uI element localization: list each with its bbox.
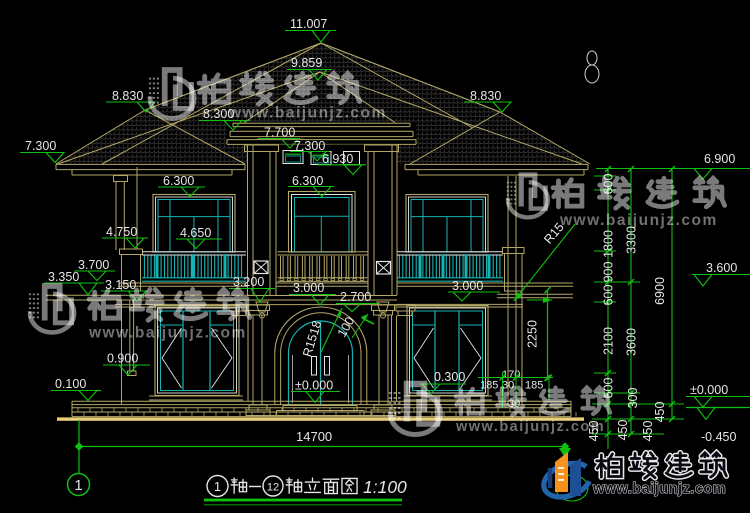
- svg-text:3.700: 3.700: [78, 258, 109, 272]
- svg-text:4.650: 4.650: [180, 226, 211, 240]
- svg-text:6.900: 6.900: [704, 152, 735, 166]
- svg-text:185: 185: [480, 380, 498, 392]
- svg-text:0.300: 0.300: [434, 370, 465, 384]
- svg-text:600: 600: [602, 285, 616, 306]
- svg-text:1:100: 1:100: [363, 477, 407, 497]
- svg-text:www.baijunjz.com: www.baijunjz.com: [559, 212, 718, 229]
- svg-text:300: 300: [626, 388, 640, 409]
- svg-text:450: 450: [653, 402, 667, 423]
- svg-text:14700: 14700: [296, 429, 332, 444]
- svg-text:4.750: 4.750: [106, 225, 137, 239]
- svg-text:9.859: 9.859: [291, 56, 322, 70]
- svg-text:7.300: 7.300: [294, 139, 325, 153]
- svg-text:±0.000: ±0.000: [690, 383, 728, 397]
- svg-text:3.600: 3.600: [706, 261, 737, 275]
- svg-text:450: 450: [641, 421, 655, 442]
- svg-text:-0.450: -0.450: [701, 430, 736, 444]
- svg-text:www.baijunjz.com: www.baijunjz.com: [88, 325, 247, 342]
- svg-text:185: 185: [525, 380, 543, 392]
- svg-text:6.300: 6.300: [163, 174, 194, 188]
- svg-text:3600: 3600: [625, 328, 639, 356]
- svg-text:11.007: 11.007: [290, 17, 327, 31]
- svg-text:8.830: 8.830: [470, 89, 501, 103]
- svg-text:www.baijunjz.com: www.baijunjz.com: [455, 419, 605, 435]
- svg-text:3.000: 3.000: [293, 281, 324, 295]
- svg-text:www.baijunjz.com: www.baijunjz.com: [592, 481, 726, 497]
- svg-text:3.350: 3.350: [48, 270, 79, 284]
- svg-text:0.900: 0.900: [107, 352, 138, 366]
- svg-text:12: 12: [267, 482, 279, 494]
- svg-text:7.300: 7.300: [25, 139, 56, 153]
- svg-text:±0.000: ±0.000: [295, 379, 333, 393]
- svg-text:1: 1: [214, 479, 221, 494]
- svg-text:450: 450: [616, 420, 630, 441]
- svg-text:6.930: 6.930: [322, 152, 353, 166]
- svg-text:6.300: 6.300: [292, 174, 323, 188]
- svg-text:3.000: 3.000: [452, 279, 483, 293]
- svg-text:900: 900: [602, 262, 616, 283]
- svg-text:0.100: 0.100: [55, 377, 86, 391]
- svg-text:www.baijunjz.com: www.baijunjz.com: [228, 105, 387, 122]
- svg-text:8.830: 8.830: [112, 89, 143, 103]
- svg-text:2.700: 2.700: [340, 290, 371, 304]
- svg-text:1: 1: [74, 477, 82, 494]
- svg-text:3300: 3300: [625, 226, 639, 254]
- svg-text:2250: 2250: [526, 320, 540, 348]
- svg-text:1800: 1800: [602, 230, 616, 258]
- svg-text:7.700: 7.700: [264, 126, 295, 140]
- svg-text:2100: 2100: [602, 327, 616, 355]
- svg-text:6900: 6900: [653, 277, 667, 305]
